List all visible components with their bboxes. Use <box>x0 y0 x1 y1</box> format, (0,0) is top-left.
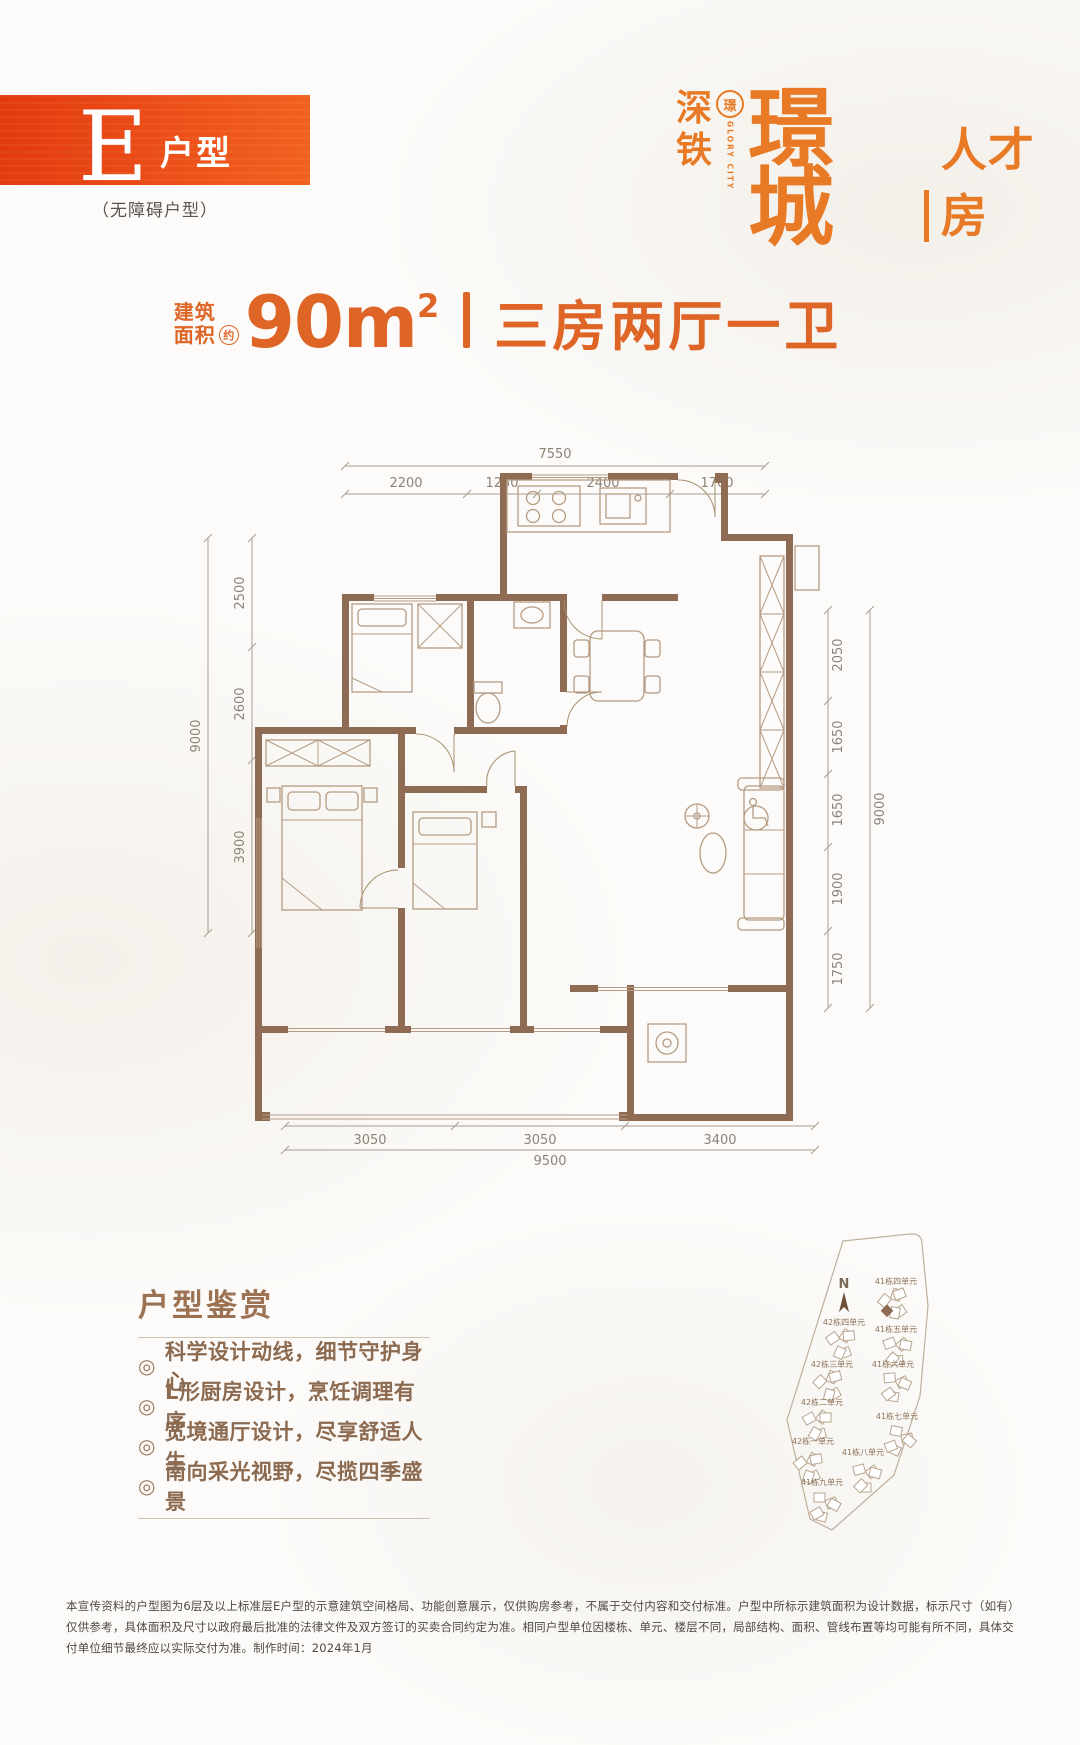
bullet-icon: ◎ <box>138 1394 156 1418</box>
features-list: ◎科学设计动线，细节守护身心 ◎L形厨房设计，烹饪调理有序 ◎宽境通厅设计，尽享… <box>138 1346 430 1506</box>
nightstand-icon <box>364 788 377 802</box>
building-label: 41栋六单元 <box>872 1359 914 1369</box>
unit-letter: E <box>78 110 148 185</box>
area-prefix-bottom: 面积 <box>174 324 216 347</box>
feature-text: 南向采光视野，尽揽四季盛景 <box>165 1456 430 1516</box>
living-room-furniture <box>685 778 784 930</box>
brand-name: 璟城 <box>748 90 912 248</box>
bullet-icon: ◎ <box>138 1434 156 1458</box>
dim-label: 1650 <box>831 720 846 753</box>
site-map: N 41栋四单元 42栋四单元 41栋五单元 42栋三单元 41栋六单元 42栋… <box>770 1228 970 1558</box>
ceiling-fan-icon <box>685 804 709 828</box>
dim-label: 3400 <box>703 1133 736 1148</box>
bed-icon <box>413 812 477 909</box>
disclaimer-text: 本宣传资料的户型图为6层及以上标准层E户型的示意建筑空间格局、功能创意展示，仅供… <box>66 1596 1014 1659</box>
unit-subtitle: （无障碍户型） <box>0 196 310 221</box>
brand-char-tie: 铁 <box>676 130 712 172</box>
coffee-table-icon <box>700 833 726 873</box>
features-section: 户型鉴赏 ◎科学设计动线，细节守护身心 ◎L形厨房设计，烹饪调理有序 ◎宽境通厅… <box>138 1280 430 1519</box>
area-value: 90m2 <box>245 293 439 352</box>
bullet-icon: ◎ <box>138 1474 156 1498</box>
dim-label: 3050 <box>353 1133 386 1148</box>
toilet-icon <box>474 682 502 723</box>
nightstand-icon <box>267 788 280 802</box>
north-compass: N <box>839 1277 850 1312</box>
feature-item: ◎南向采光视野，尽揽四季盛景 <box>138 1466 430 1506</box>
building-label: 42栋二单元 <box>801 1397 843 1407</box>
building-label: 42栋四单元 <box>823 1317 865 1327</box>
area-prefix-top: 建筑 <box>174 301 216 324</box>
stove-icon <box>518 486 580 526</box>
area-number: 90m <box>245 280 417 364</box>
dim-label: 3900 <box>233 830 248 863</box>
brand-english: GLORY CITY <box>726 121 735 190</box>
wheelchair-icon <box>744 799 768 831</box>
dimensions-left: 9000 2500 2600 3900 <box>189 534 256 937</box>
bed-icon <box>282 786 362 910</box>
bed-icon <box>352 604 412 692</box>
floor-plan: 7550 2200 1250 2400 1700 9000 2500 2600 … <box>170 388 900 1168</box>
building-label: 42栋一单元 <box>792 1436 834 1446</box>
floorplan-poster: E 户型 （无障碍户型） 深 铁 璟 GLORY CITY 璟城 人才房 建筑 … <box>0 0 1080 1745</box>
area-superscript: 2 <box>417 287 439 325</box>
dimensions-right: 2050 1650 1650 1900 1750 9000 <box>824 606 888 1012</box>
dimensions-bottom: 3050 3050 3400 9500 <box>281 1122 819 1168</box>
walls <box>255 473 793 1121</box>
north-label: N <box>839 1277 850 1292</box>
logo-divider <box>924 190 929 242</box>
area-prefix: 建筑 面积 <box>174 301 216 347</box>
dimensions-top: 7550 2200 1250 2400 1700 <box>341 447 769 498</box>
dim-label: 1650 <box>831 793 846 826</box>
windows <box>257 475 728 1119</box>
room-layout-text: 三房两厅一卫 <box>494 303 842 352</box>
approx-circle: 约 <box>219 325 239 345</box>
bathroom-fixtures <box>474 602 550 723</box>
brand-char-shen: 深 <box>676 88 712 130</box>
dim-label: 1750 <box>831 952 846 985</box>
seal-icon: 璟 <box>716 90 744 118</box>
dim-label: 2200 <box>389 476 422 491</box>
unit-type-badge: E 户型 <box>0 95 310 185</box>
washbasin-icon <box>514 602 550 628</box>
building-label: 41栋八单元 <box>842 1447 884 1457</box>
brand-shentie: 深 铁 <box>676 88 712 172</box>
dim-label: 7550 <box>538 447 571 462</box>
building-label: 41栋五单元 <box>875 1324 917 1334</box>
features-title: 户型鉴赏 <box>138 1280 430 1325</box>
dim-label: 3050 <box>523 1133 556 1148</box>
dim-label: 9000 <box>189 719 204 752</box>
brand-suffix: 人才房 <box>941 114 1080 246</box>
dining-table-icon <box>574 631 660 701</box>
ac-platform <box>795 546 819 590</box>
sofa-icon <box>738 778 784 930</box>
building-label: 42栋三单元 <box>811 1359 853 1369</box>
bedroom2-furniture <box>352 604 462 692</box>
wardrobe-icon <box>418 604 462 648</box>
building-label: 41栋四单元 <box>875 1276 917 1286</box>
building-label: 41栋七单元 <box>876 1411 918 1421</box>
dim-label: 2500 <box>233 576 248 609</box>
bedroom3-furniture <box>413 812 496 909</box>
brand-seal-column: 璟 GLORY CITY <box>716 90 744 190</box>
dim-label: 1900 <box>831 872 846 905</box>
area-headline: 建筑 面积 约 90m2 三房两厅一卫 <box>0 292 1048 352</box>
sink-icon <box>600 488 646 524</box>
cabinet-icon <box>760 556 784 788</box>
bullet-icon: ◎ <box>138 1354 156 1378</box>
dim-label: 2050 <box>831 638 846 671</box>
dim-label: 9000 <box>873 792 888 825</box>
washing-machine-icon <box>648 1024 686 1062</box>
nightstand-icon <box>482 812 496 827</box>
compass-arrow-icon <box>839 1292 849 1312</box>
building-label: 41栋九单元 <box>801 1477 843 1487</box>
brand-logo: 深 铁 璟 GLORY CITY 璟城 人才房 <box>676 88 1080 248</box>
headline-divider <box>463 292 470 348</box>
divider-line <box>138 1518 430 1519</box>
dim-label: 2600 <box>233 687 248 720</box>
dim-label: 9500 <box>533 1154 566 1168</box>
master-bedroom-furniture <box>266 740 377 910</box>
unit-type-label: 户型 <box>160 126 232 175</box>
wardrobe-icon <box>266 740 370 766</box>
